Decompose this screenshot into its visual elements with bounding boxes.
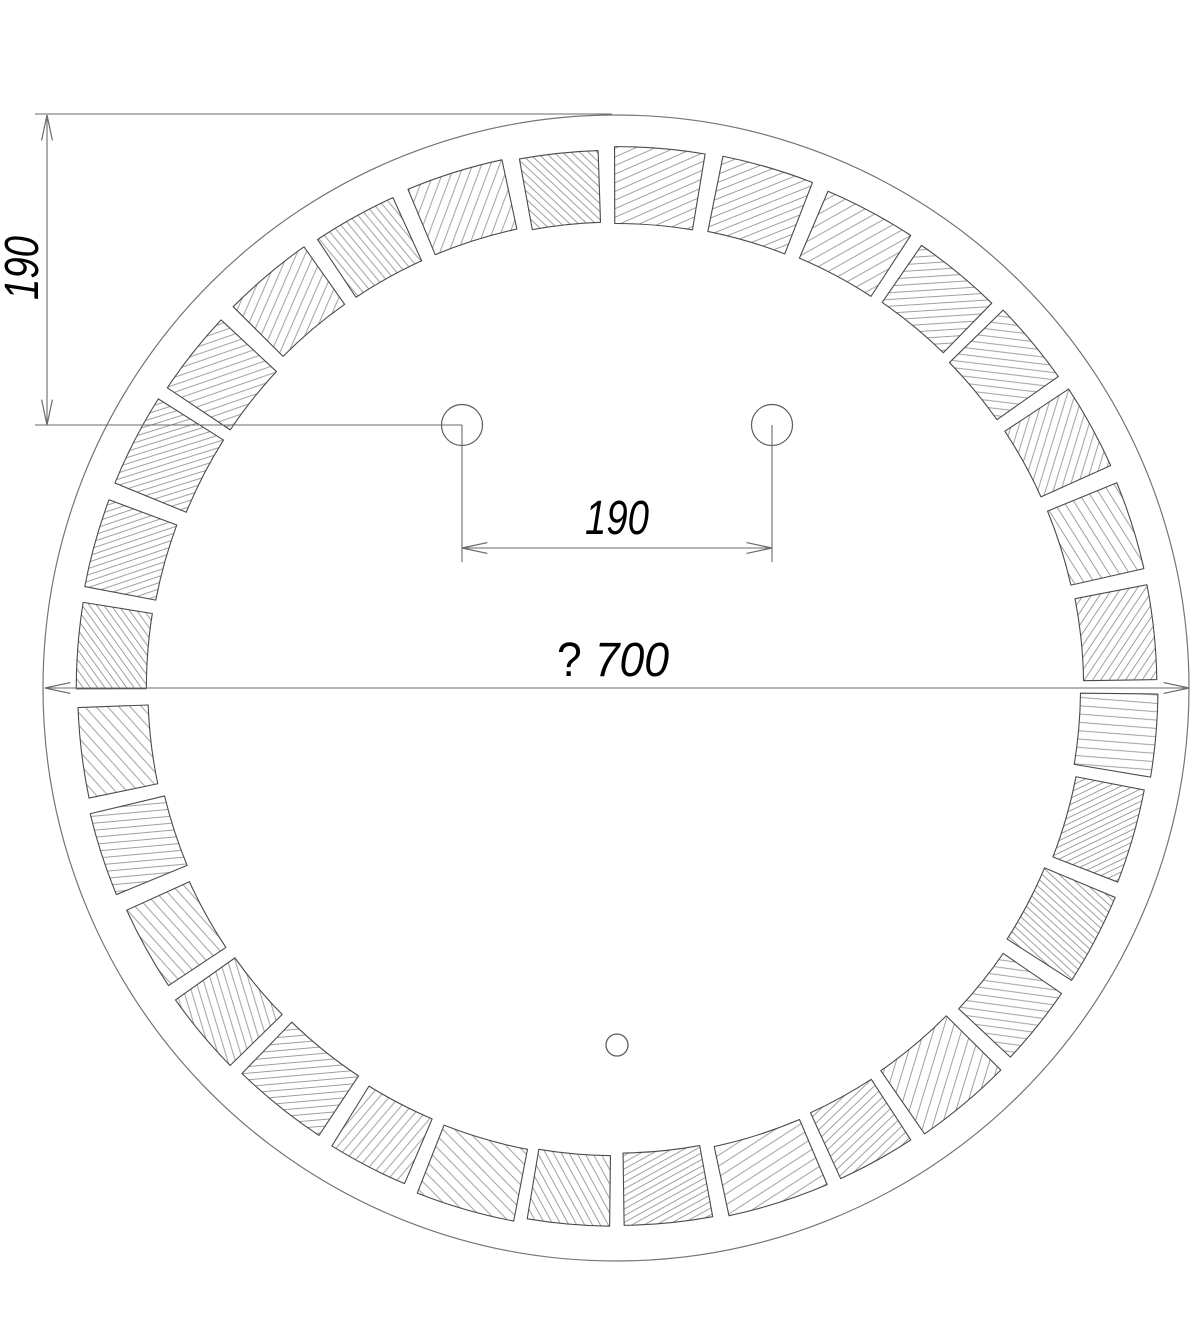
- bottom-small-hole: [606, 1034, 628, 1056]
- dim-diameter-700: ?700: [45, 634, 1189, 693]
- mosaic-tile: [1048, 483, 1144, 585]
- mosaic-tile: [90, 796, 187, 895]
- dim-label-diameter: ?700: [557, 634, 669, 687]
- mosaic-tile: [519, 151, 600, 230]
- mosaic-tile: [1007, 868, 1115, 981]
- mosaic-tile: [78, 705, 158, 798]
- mosaic-tile: [708, 156, 813, 254]
- mosaic-tile: [76, 602, 152, 688]
- mosaic-tile: [85, 500, 177, 600]
- mosaic-tile: [1075, 585, 1157, 681]
- mosaic-tile: [417, 1125, 527, 1221]
- mosaic-tile: [810, 1079, 910, 1178]
- dim-label-hole-spacing: 190: [585, 492, 649, 545]
- mosaic-tile: [527, 1149, 610, 1226]
- mosaic-tile: [1005, 389, 1111, 497]
- mosaic-tile: [233, 247, 344, 356]
- mosaic-tile: [1074, 693, 1158, 777]
- mosaic-tile: [242, 1022, 358, 1135]
- mosaic-tile: [318, 198, 422, 298]
- mosaic-tile: [881, 1016, 1001, 1134]
- mosaic-tile: [959, 953, 1062, 1057]
- mosaic-tile: [408, 160, 517, 255]
- mosaic-tile: [167, 320, 276, 430]
- diameter-value: 700: [595, 634, 670, 687]
- mosaic-tile: [799, 191, 910, 296]
- technical-drawing: 190190?700: [0, 0, 1200, 1317]
- drawing-canvas: 190190?700: [0, 0, 1200, 1317]
- mosaic-tile: [1053, 777, 1144, 882]
- mosaic-tile: [714, 1120, 827, 1216]
- dim-hole-spacing-190: 190: [462, 425, 772, 562]
- mosaic-tile: [623, 1146, 713, 1226]
- diameter-symbol: ?: [557, 634, 582, 687]
- mosaic-tile: [115, 399, 224, 512]
- mosaic-tile: [332, 1086, 432, 1184]
- dim-label-vertical-190: 190: [0, 236, 49, 300]
- mosaic-tile: [615, 147, 706, 230]
- mosaic-tile: [127, 882, 226, 986]
